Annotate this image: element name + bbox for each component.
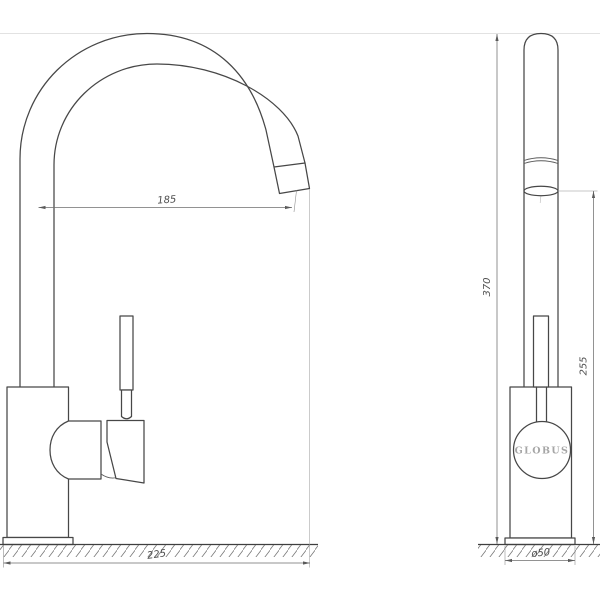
- brand-logo-text: GLOBUS: [515, 446, 570, 457]
- aerator-tip: [274, 163, 310, 194]
- handle-lever-body: [107, 421, 144, 484]
- base-plate-side: [3, 538, 73, 545]
- dim-185-extension-line: [294, 191, 297, 213]
- dim-50-arrow-right: [568, 559, 575, 562]
- spout-outer-contour: [20, 34, 274, 388]
- dim-label-spout-reach: 185: [157, 194, 177, 206]
- technical-drawing-canvas: GLOBUS 185 225 370 25: [0, 0, 600, 600]
- dim-label-overall-depth: 225: [146, 548, 166, 562]
- dim-185-arrow-right: [285, 206, 292, 209]
- faucet-technical-drawing: GLOBUS 185 225 370 25: [0, 0, 600, 600]
- dim-50-arrow-left: [505, 559, 512, 562]
- handle-stem-side: [120, 316, 133, 390]
- dim-label-outlet-height: 255: [579, 356, 590, 375]
- dim-370-arrow-bottom: [495, 537, 498, 544]
- base-plate-front: [505, 538, 575, 545]
- spout-inner-contour: [54, 64, 305, 387]
- dim-spout-reach: 185: [39, 191, 297, 213]
- dim-185-arrow-left: [39, 206, 46, 209]
- dim-370-arrow-top: [495, 34, 498, 41]
- front-view: GLOBUS: [505, 34, 575, 545]
- ground: [0, 545, 600, 558]
- side-view: [3, 34, 310, 545]
- dim-225-arrow-right: [303, 561, 310, 564]
- dim-label-base-diameter: ø50: [530, 547, 551, 560]
- dim-255-arrow-bottom: [592, 537, 595, 544]
- handle-stem-front: [534, 316, 549, 387]
- handle-stem-neck-side: [122, 390, 132, 419]
- dim-255-arrow-top: [592, 191, 595, 198]
- dim-label-overall-height: 370: [482, 277, 493, 296]
- dim-225-arrow-left: [4, 561, 11, 564]
- dim-overall-height: 370: [482, 34, 499, 544]
- cartridge-housing: [50, 421, 101, 479]
- aerator-outlet-ellipse: [524, 186, 558, 195]
